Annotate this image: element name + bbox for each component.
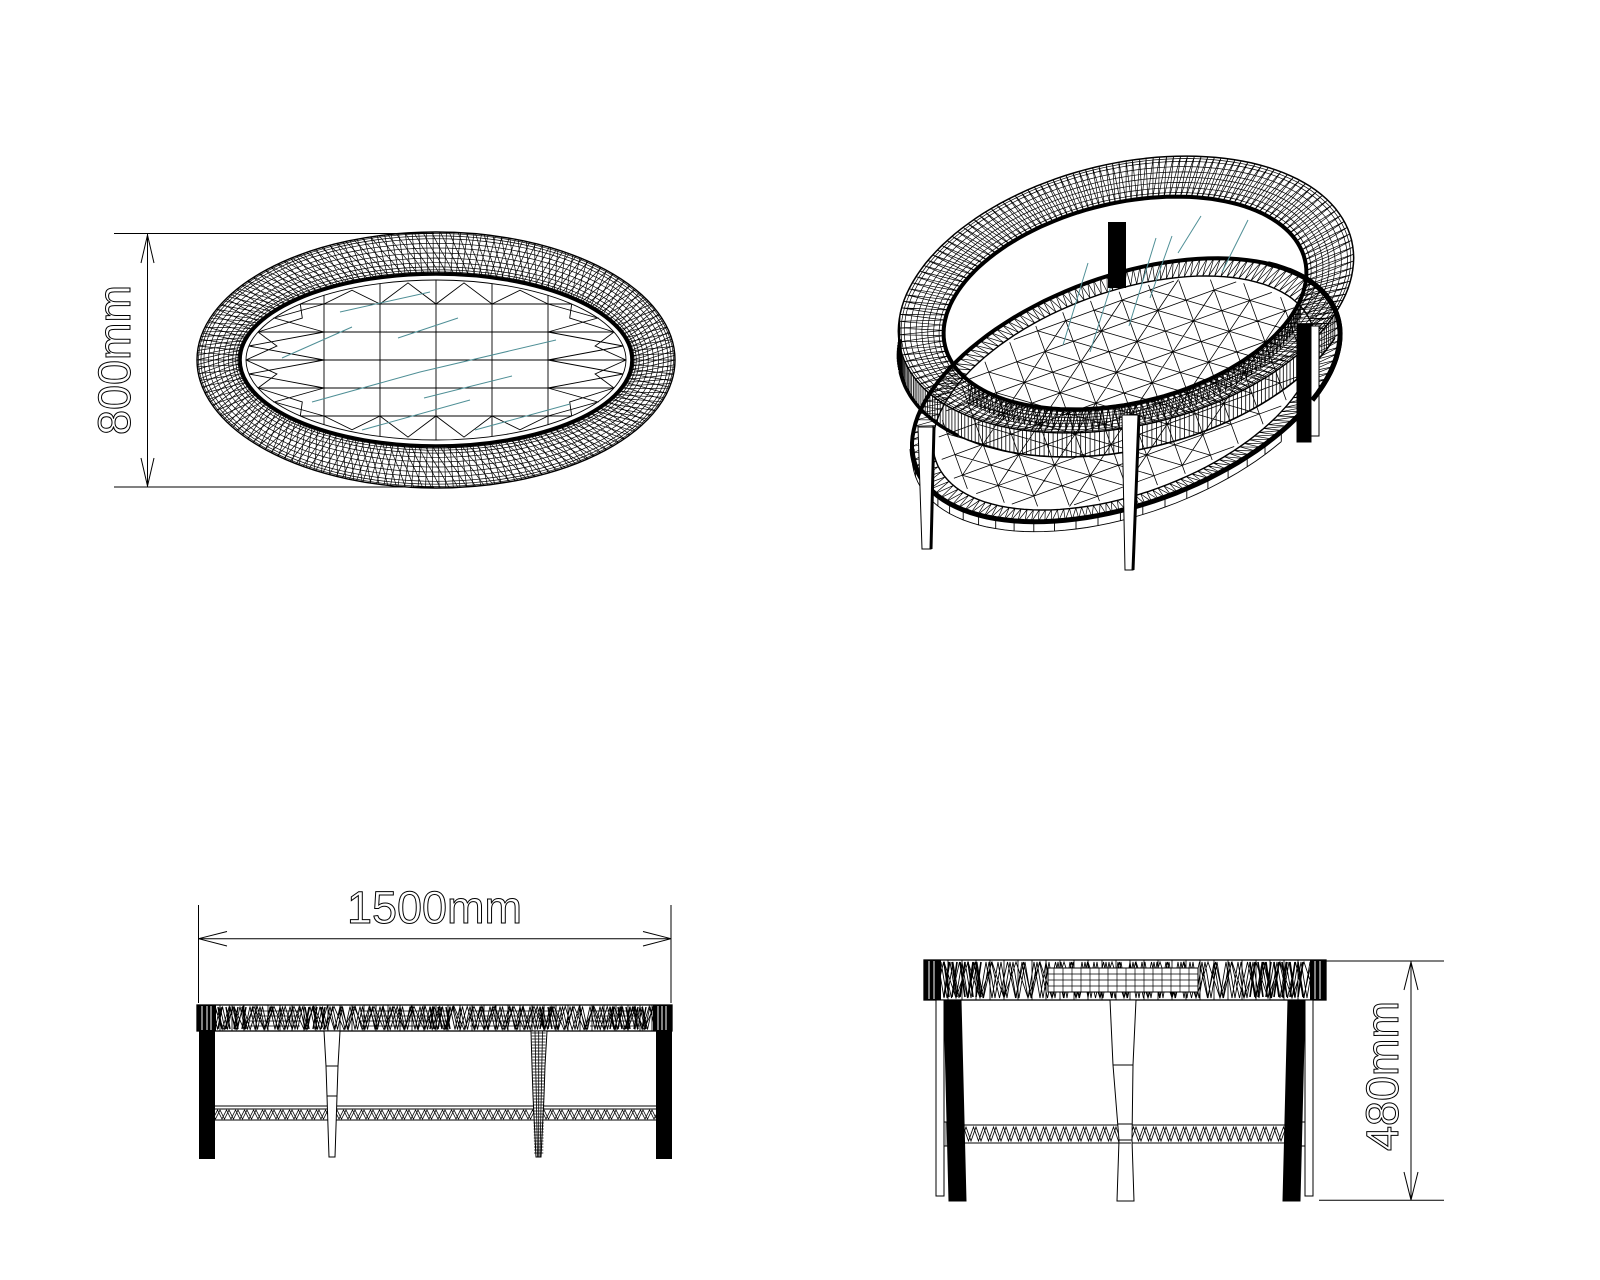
svg-text:800mm: 800mm	[89, 285, 140, 435]
svg-text:1500mm: 1500mm	[347, 882, 522, 933]
svg-text:480mm: 480mm	[1357, 1001, 1408, 1151]
